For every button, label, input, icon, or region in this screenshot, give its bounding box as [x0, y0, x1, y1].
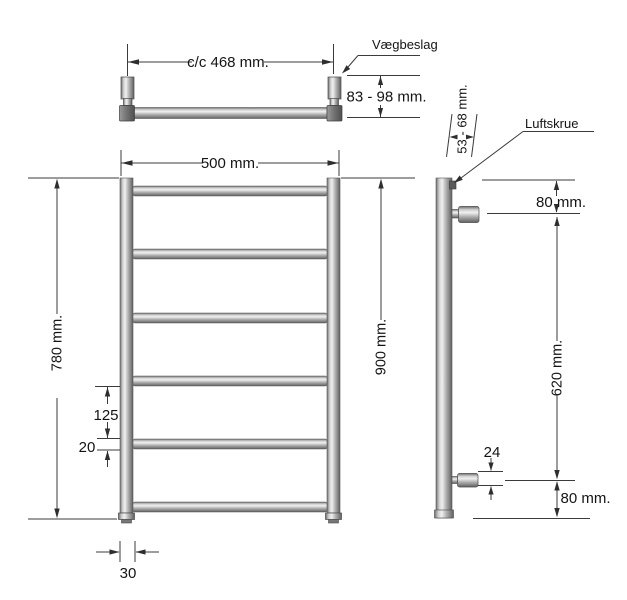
- bottom-valve-body: [458, 474, 479, 488]
- rung: [133, 439, 327, 449]
- arrow-up-icon: [378, 76, 383, 85]
- front-view: [119, 178, 342, 523]
- top-valve-body: [459, 207, 480, 223]
- top-view-crossbar-tube: [134, 108, 327, 119]
- wall-bracket-left-neck: [124, 99, 133, 106]
- wall-bracket-label: Vægbeslag: [372, 37, 438, 52]
- arrow-up-icon: [105, 451, 110, 460]
- front-right-foot: [326, 513, 342, 520]
- arrow-right-icon: [322, 59, 333, 64]
- arrow-up-icon: [554, 181, 559, 190]
- bottom-offset-label: 80 mm.: [560, 490, 610, 507]
- wall-bracket-right-cap: [328, 77, 341, 99]
- wall-bracket-left-base: [120, 106, 135, 122]
- leader-arrow-icon: [454, 176, 463, 184]
- arrow-left-icon: [122, 160, 133, 165]
- connection-span-label: 620 mm.: [550, 340, 566, 396]
- top-offset-label: 80 mm.: [536, 194, 586, 211]
- wall-distance-label: 53 - 68 mm.: [455, 84, 470, 153]
- bottom-valve-neck: [452, 477, 458, 484]
- tube-diameter-label: 30: [120, 565, 137, 582]
- rung: [133, 249, 327, 259]
- height-label: 780 mm.: [50, 315, 66, 371]
- top-connection-valve: [452, 207, 479, 223]
- wall-bracket-left-cap: [121, 77, 134, 99]
- technical-drawing-page: c/c 468 mm. Vægbeslag 83 - 98 mm.: [0, 0, 627, 600]
- arrow-up-icon: [554, 481, 559, 490]
- arrow-left-icon: [128, 59, 139, 64]
- arrow-left-icon: [136, 549, 146, 554]
- side-view: [435, 178, 480, 518]
- arrow-down-icon: [378, 108, 383, 117]
- rung: [133, 376, 327, 386]
- top-view: [120, 77, 343, 121]
- arrow-right-icon: [110, 549, 120, 554]
- wall-depth-range-label: 83 - 98 mm.: [346, 89, 426, 106]
- rung: [133, 502, 327, 512]
- front-left-foot-tip: [122, 520, 132, 524]
- rung: [133, 313, 327, 323]
- arrow-up-icon: [488, 486, 493, 494]
- center-distance-label: c/c 468 mm.: [187, 54, 269, 71]
- wall-bracket-right-base: [327, 106, 342, 122]
- arrow-right-icon: [328, 160, 339, 165]
- rung-diameter-label: 20: [79, 439, 96, 456]
- arrow-down-icon: [488, 463, 493, 471]
- wall-bracket-left: [120, 77, 135, 121]
- arrow-down-icon: [554, 508, 559, 517]
- air-screw-label: Luftskrue: [525, 116, 578, 131]
- install-height-label: 900 mm.: [374, 319, 390, 375]
- top-valve-neck: [452, 210, 459, 219]
- side-tube: [436, 178, 452, 518]
- arrow-down-icon: [54, 509, 59, 519]
- top-view-dimensions: c/c 468 mm. Vægbeslag 83 - 98 mm.: [128, 37, 438, 118]
- arrow-up-icon: [554, 217, 559, 226]
- wall-bracket-right-neck: [330, 99, 339, 106]
- rung-spacing-label: 125: [93, 407, 118, 424]
- arrow-up-icon: [54, 179, 59, 189]
- width-label: 500 mm.: [201, 155, 259, 172]
- wall-bracket-right: [327, 77, 342, 121]
- arrow-down-icon: [105, 429, 110, 438]
- front-left-tube: [120, 178, 133, 513]
- front-right-tube: [327, 178, 340, 513]
- side-view-dimensions: 53 - 68 mm. Luftskrue 80 mm. 620 mm. 24: [447, 84, 611, 518]
- arrow-down-icon: [554, 470, 559, 479]
- rung: [133, 186, 327, 196]
- front-view-dimensions: 500 mm. 780 mm. 900 mm. 125 20: [28, 150, 415, 582]
- arrow-up-icon: [105, 387, 110, 396]
- front-left-foot: [119, 513, 135, 520]
- towel-radiator-dimension-drawing: c/c 468 mm. Vægbeslag 83 - 98 mm.: [0, 0, 627, 600]
- side-foot: [435, 510, 454, 518]
- arrow-up-icon: [378, 179, 383, 189]
- valve-diameter-label: 24: [484, 444, 501, 461]
- bottom-connection-valve: [452, 474, 478, 488]
- front-right-foot-tip: [329, 520, 339, 524]
